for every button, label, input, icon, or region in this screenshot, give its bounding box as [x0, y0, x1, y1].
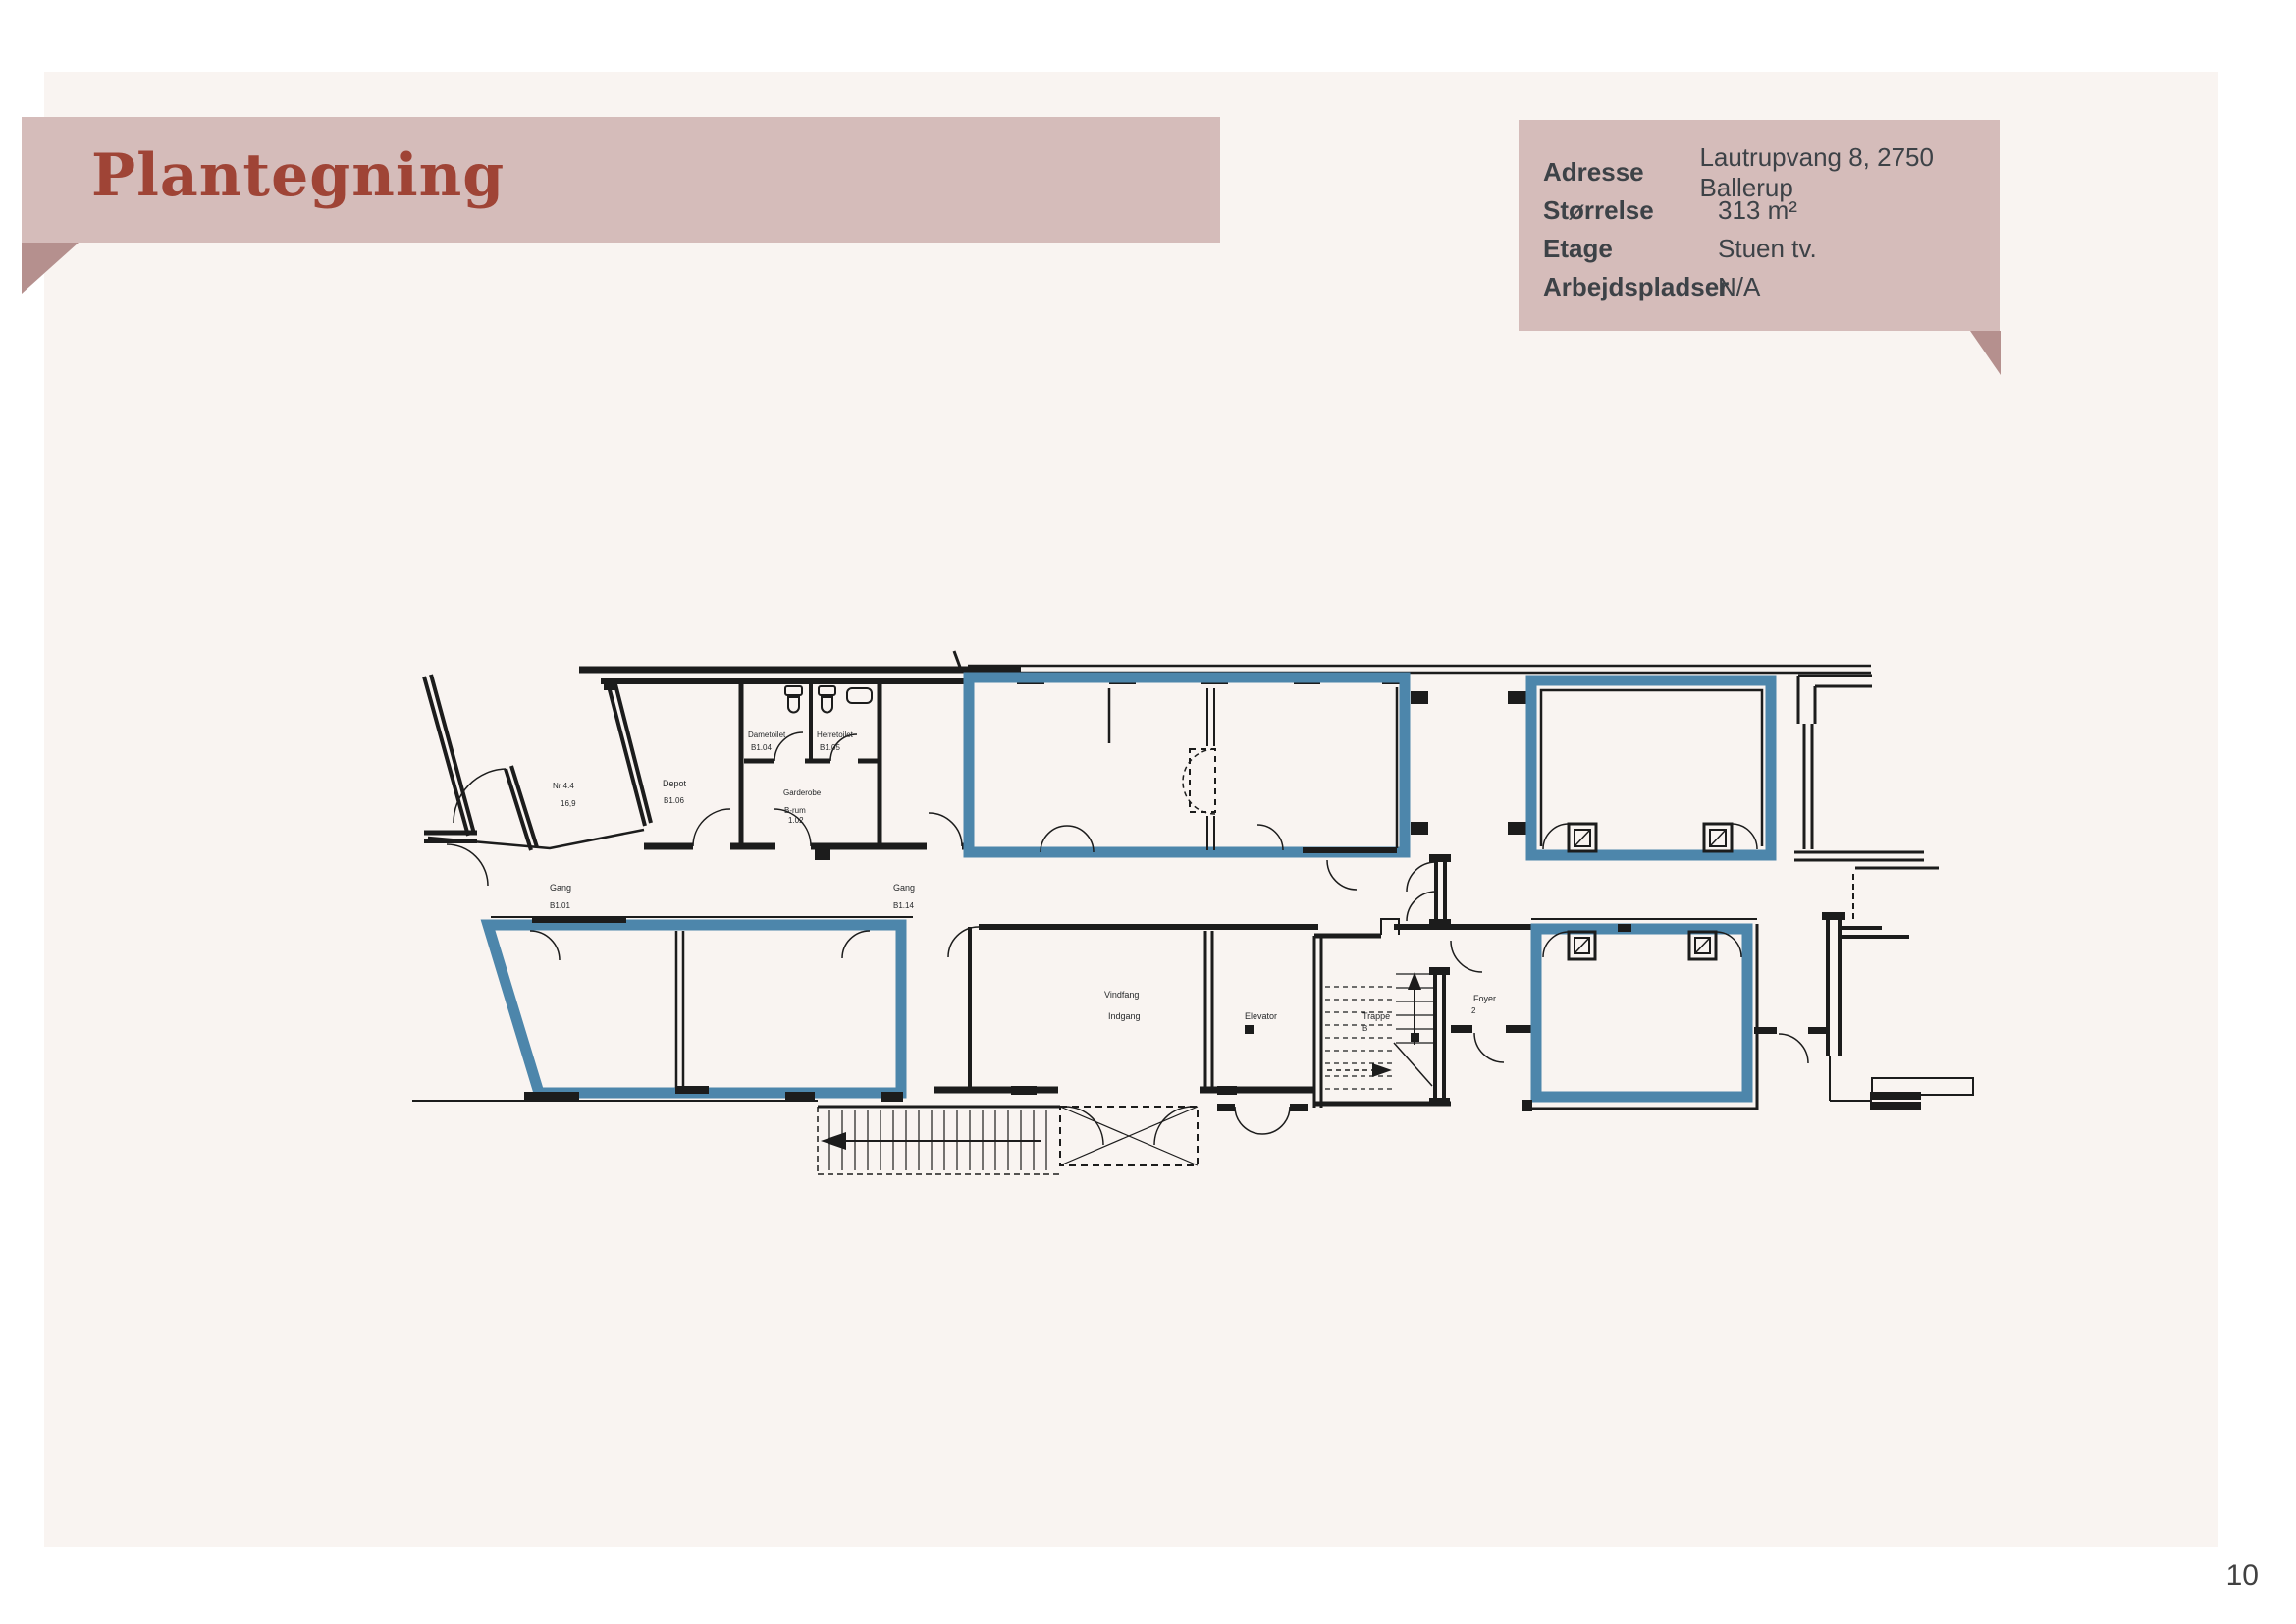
info-row-adresse: Adresse Lautrupvang 8, 2750 Ballerup [1543, 153, 2000, 191]
info-row-arbejdspladser: Arbejdspladser N/A [1543, 268, 2000, 306]
info-value: Lautrupvang 8, 2750 Ballerup [1699, 142, 2000, 203]
info-label: Arbejdspladser [1543, 272, 1718, 302]
info-label: Størrelse [1543, 195, 1718, 226]
title-banner: Plantegning [22, 117, 1220, 243]
info-label: Adresse [1543, 157, 1699, 188]
info-value: 313 m² [1718, 195, 1797, 226]
info-row-etage: Etage Stuen tv. [1543, 230, 2000, 268]
info-value: N/A [1718, 272, 1760, 302]
page-number: 10 [2226, 1559, 2259, 1593]
info-label: Etage [1543, 234, 1718, 264]
page-title: Plantegning [22, 117, 1220, 205]
document-page: Plantegning Adresse Lautrupvang 8, 2750 … [0, 0, 2296, 1624]
info-panel: Adresse Lautrupvang 8, 2750 Ballerup Stø… [1519, 120, 2000, 331]
info-value: Stuen tv. [1718, 234, 1817, 264]
